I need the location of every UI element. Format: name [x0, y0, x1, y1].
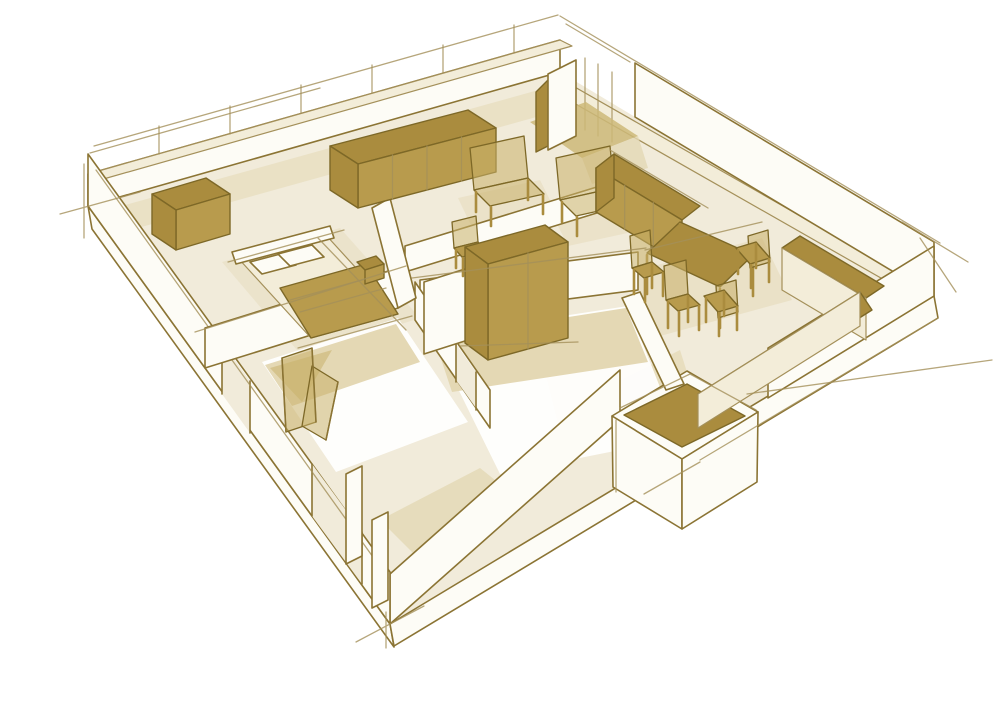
floor-plan-canvas [0, 0, 1000, 707]
floor-plan-sketch [0, 0, 1000, 707]
tall-jamb-1 [346, 466, 362, 564]
wardrobe [465, 225, 568, 360]
entry-column-side [536, 80, 548, 152]
wardrobe-side [465, 247, 488, 360]
dining-chair-2-back [664, 260, 688, 300]
entry-column [548, 60, 576, 150]
open-door-leaf [424, 268, 468, 354]
tall-jamb-2 [372, 512, 388, 608]
